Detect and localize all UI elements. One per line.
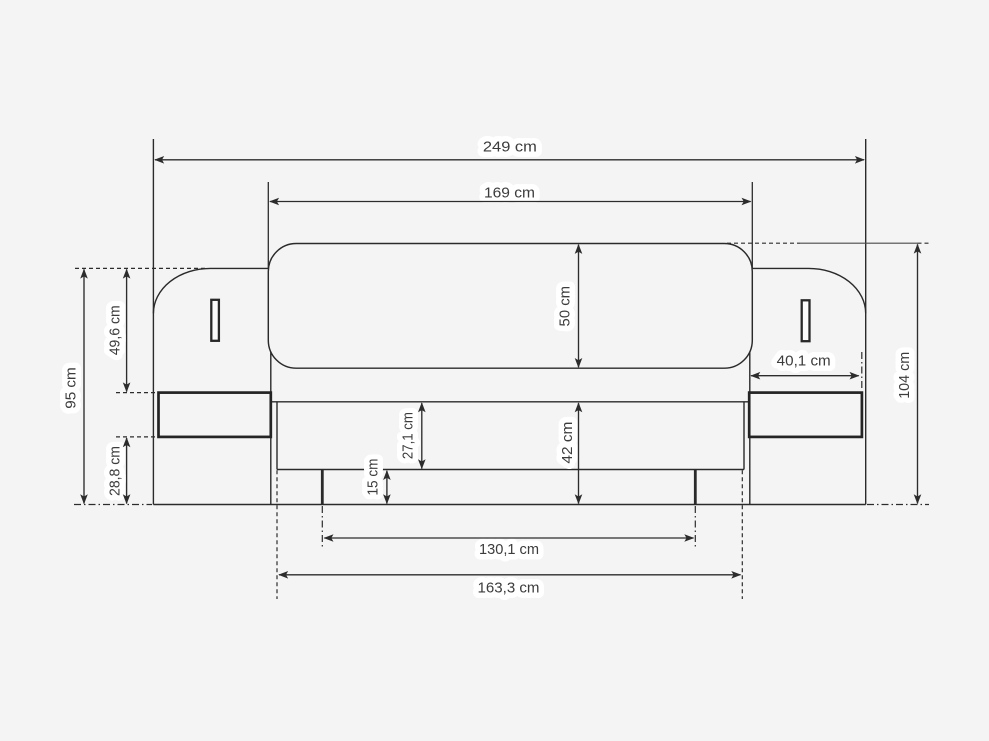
svg-text:163,3 cm: 163,3 cm <box>478 580 540 596</box>
svg-text:104 cm: 104 cm <box>897 352 913 399</box>
svg-text:95 cm: 95 cm <box>63 367 79 409</box>
svg-text:42 cm: 42 cm <box>560 422 576 464</box>
svg-text:28,8 cm: 28,8 cm <box>108 446 124 496</box>
svg-text:40,1 cm: 40,1 cm <box>777 353 831 369</box>
svg-text:15 cm: 15 cm <box>366 459 382 496</box>
svg-text:50 cm: 50 cm <box>557 286 573 327</box>
svg-text:249 cm: 249 cm <box>483 140 537 156</box>
svg-text:130,1 cm: 130,1 cm <box>479 542 539 558</box>
svg-text:169 cm: 169 cm <box>484 186 535 202</box>
svg-text:49,6 cm: 49,6 cm <box>108 305 124 355</box>
svg-text:27,1 cm: 27,1 cm <box>401 412 417 459</box>
